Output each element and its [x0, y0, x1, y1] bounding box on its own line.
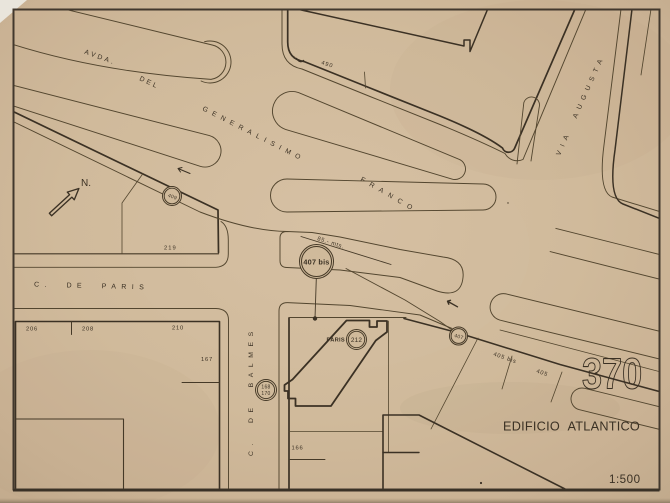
svg-text:219: 219: [164, 246, 177, 252]
svg-text:370: 370: [582, 349, 642, 398]
svg-text:EDIFICIO ATLANTICO: EDIFICIO ATLANTICO: [503, 420, 640, 434]
svg-text:208: 208: [82, 327, 94, 333]
svg-text:170: 170: [261, 391, 270, 397]
svg-text:407 bis: 407 bis: [303, 258, 329, 267]
svg-text:206: 206: [26, 327, 38, 333]
svg-text:C. DE BALMES: C. DE BALMES: [248, 326, 255, 456]
svg-text:212: 212: [351, 337, 363, 344]
svg-text:210: 210: [172, 326, 184, 332]
svg-text:168: 168: [261, 385, 270, 391]
svg-text:1:500: 1:500: [609, 473, 641, 486]
svg-text:PARIS: PARIS: [327, 338, 345, 344]
svg-text:N.: N.: [81, 178, 91, 189]
svg-text:167: 167: [201, 357, 213, 363]
svg-text:166: 166: [292, 446, 304, 452]
